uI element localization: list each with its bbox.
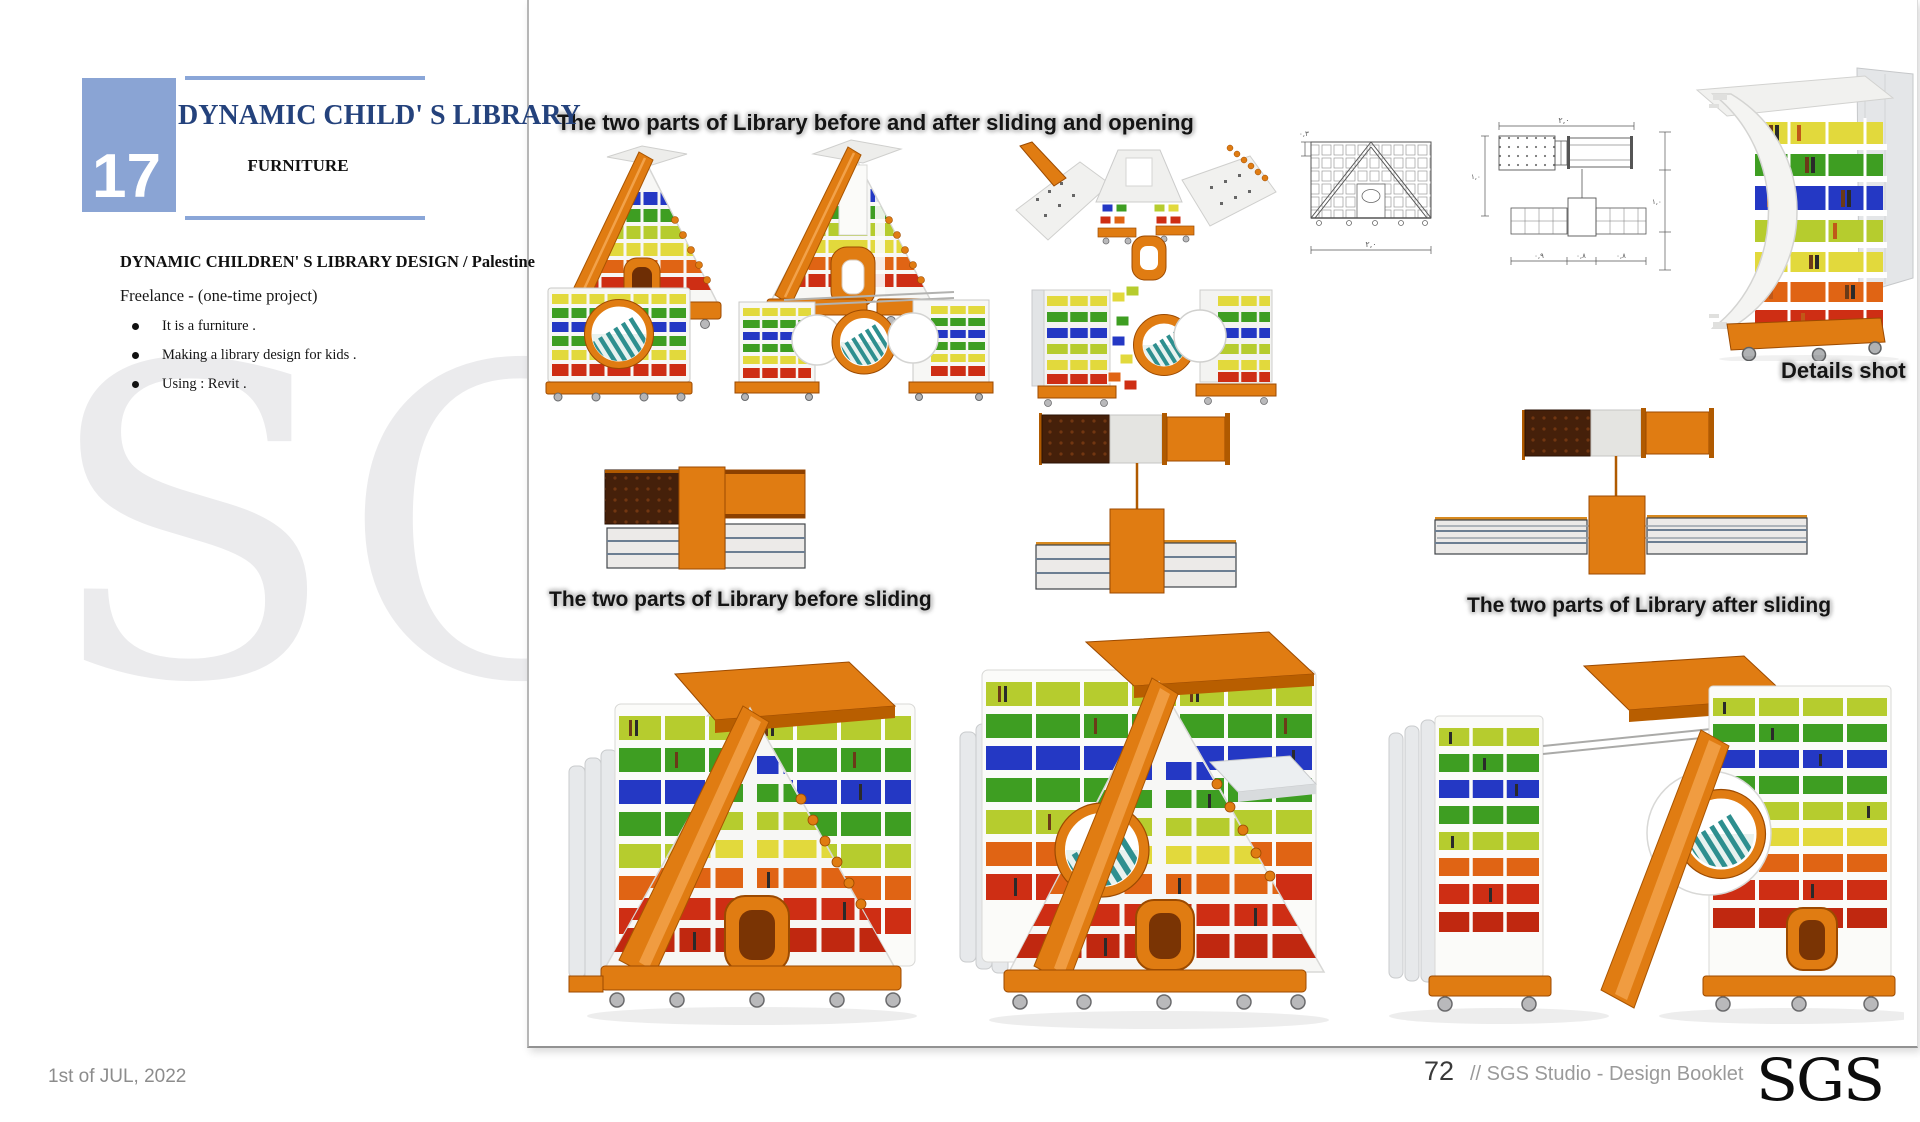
project-bullet-list: It is a furniture . Making a library des…	[120, 318, 357, 405]
render-plan-before	[599, 462, 811, 577]
bullet-item: It is a furniture .	[120, 318, 357, 335]
bullet-text: It is a furniture .	[162, 318, 256, 334]
dim-plan-width: ٢,٠	[1558, 116, 1569, 125]
render-details-shot	[1669, 66, 1919, 361]
render-big-assembled	[557, 616, 932, 1041]
dim-front-width: ٢,٠	[1365, 240, 1376, 249]
sgs-logo: SGS	[1756, 1046, 1883, 1114]
bullet-item: Making a library design for kids .	[120, 347, 357, 364]
bullet-text: Making a library design for kids .	[162, 347, 357, 363]
dim-side-height: ١,٠	[1652, 198, 1662, 206]
render-plan-sliding	[1034, 405, 1239, 600]
chapter-number: 17	[92, 146, 161, 208]
caption-top: The two parts of Library before and afte…	[557, 110, 1194, 136]
dim-plan-height: ١,٠	[1471, 173, 1481, 181]
page-title: DYNAMIC CHILD' S LIBRARY	[178, 100, 578, 132]
page-subtitle: FURNITURE	[178, 156, 418, 176]
bullet-dot	[132, 381, 139, 388]
render-plan-after	[1429, 402, 1814, 590]
bullet-dot	[132, 352, 139, 359]
caption-before: The two parts of Library before sliding	[549, 588, 932, 612]
chapter-number-box: 17	[82, 78, 176, 212]
left-column: 17 DYNAMIC CHILD' S LIBRARY FURNITURE DY…	[0, 0, 560, 1048]
render-big-separated	[1379, 608, 1904, 1043]
renders-panel: The two parts of Library before and afte…	[527, 0, 1918, 1048]
divider-line-top	[185, 76, 425, 80]
render-shelf-tunnel	[544, 284, 694, 402]
cad-front-elevation: ٢,٠ ٠,٣	[1297, 118, 1457, 273]
caption-details: Details shot	[1781, 358, 1906, 384]
project-heading: DYNAMIC CHILDREN' S LIBRARY DESIGN / Pal…	[120, 252, 535, 272]
render-exploded-parts	[1014, 140, 1279, 430]
caption-after: The two parts of Library after sliding	[1467, 594, 1831, 618]
dim-plan-d1: ٠,٩	[1534, 252, 1544, 260]
divider-line-bottom	[185, 216, 425, 220]
project-type: Freelance - (one-time project)	[120, 286, 317, 306]
dim-plan-d2: ٠,٨	[1576, 252, 1586, 260]
dim-plan-d3: ٠,٨	[1616, 252, 1626, 260]
booklet-page: SGS 17 DYNAMIC CHILD' S LIBRARY FURNITUR…	[0, 0, 1920, 1122]
dim-front-offset: ٠,٣	[1299, 130, 1309, 138]
footer-date: 1st of JUL, 2022	[48, 1066, 186, 1088]
bullet-dot	[132, 323, 139, 330]
footer-page-number: 72	[1424, 1056, 1454, 1087]
render-big-sliding	[954, 612, 1359, 1042]
footer-studio-credit: // SGS Studio - Design Booklet	[1470, 1063, 1743, 1086]
bullet-text: Using : Revit .	[162, 376, 247, 392]
cad-plan-view: ٢,٠ ١,٠ ٠,٩	[1469, 116, 1669, 281]
render-shelf-split	[729, 280, 999, 402]
bullet-item: Using : Revit .	[120, 376, 357, 393]
